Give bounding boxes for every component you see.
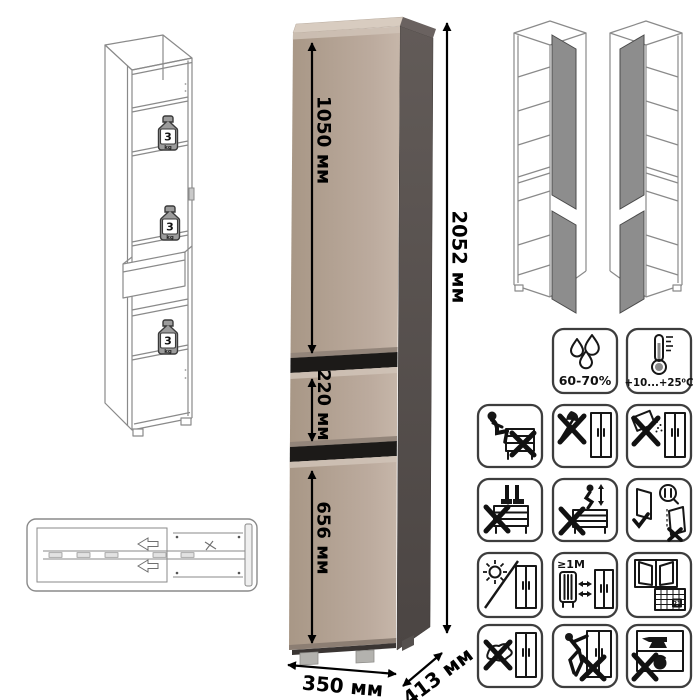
open-window-icon [635, 560, 677, 587]
door-handle [189, 188, 194, 200]
humidity-label: 60-70% [559, 373, 612, 388]
humidity-tile: 60-70% [553, 329, 617, 393]
distance-label: ≥1M [557, 558, 585, 571]
dim-total-height: 2052 мм [448, 211, 471, 304]
cabinet-front [289, 27, 400, 651]
wireframe-left-hinged [514, 21, 586, 313]
care-icon-no-dragging [553, 625, 617, 687]
care-icon-no-wet-cleaning [478, 625, 542, 687]
care-icon-no-abrasives [627, 405, 691, 467]
shelf-load-weight [160, 206, 179, 241]
drawer-slide-diagram [25, 515, 260, 595]
slide-rail [43, 551, 249, 559]
upper-door [291, 27, 401, 359]
door-orientation-wireframes [500, 13, 696, 315]
care-pictogram-panel: 60-70% +10...+25⁰C [470, 325, 698, 695]
care-icon-no-direct-sunlight [478, 553, 542, 617]
dim-upper-door: 1050 мм [313, 96, 334, 184]
dim-lower-door: 656 мм [313, 501, 334, 574]
care-icon-no-heavy-load [627, 625, 691, 687]
slide-end-bracket [245, 524, 252, 586]
drawer-front [290, 367, 398, 447]
foot [133, 429, 143, 436]
care-icon-no-sharp-tools [553, 405, 617, 467]
shelf-load-weight [158, 320, 177, 355]
care-icon-door-adjustment [627, 479, 691, 541]
care-icon-heat-source-distance: ≥1M [553, 553, 617, 617]
open-cabinet-wireframe: 3 kg [55, 28, 240, 463]
cabinet-side [397, 26, 433, 650]
lower-door [289, 456, 397, 650]
foot [181, 418, 191, 425]
latch-mark [205, 541, 216, 550]
product-technical-sheet: 3 kg [0, 0, 700, 700]
dim-width: 350 мм [301, 671, 384, 700]
temperature-label: +10...+25⁰C [625, 378, 694, 389]
cabinet-3d-render: 1050 мм 2052 мм 220 мм 656 мм 350 мм 413… [270, 5, 490, 700]
wireframe-right-hinged [610, 21, 682, 313]
calendar-day: 21 [673, 601, 681, 608]
open-drawer [123, 246, 192, 316]
dim-depth: 413 мм [398, 642, 477, 700]
shelf-load-weight [158, 116, 177, 151]
care-icon-no-standing [478, 479, 542, 541]
dim-drawer: 220 мм [313, 369, 333, 440]
care-icon-no-jumping [553, 479, 617, 541]
care-icon-ventilate-room: 21 [627, 553, 691, 617]
care-icon-no-sitting [478, 405, 542, 467]
temperature-tile: +10...+25⁰C [625, 329, 694, 393]
